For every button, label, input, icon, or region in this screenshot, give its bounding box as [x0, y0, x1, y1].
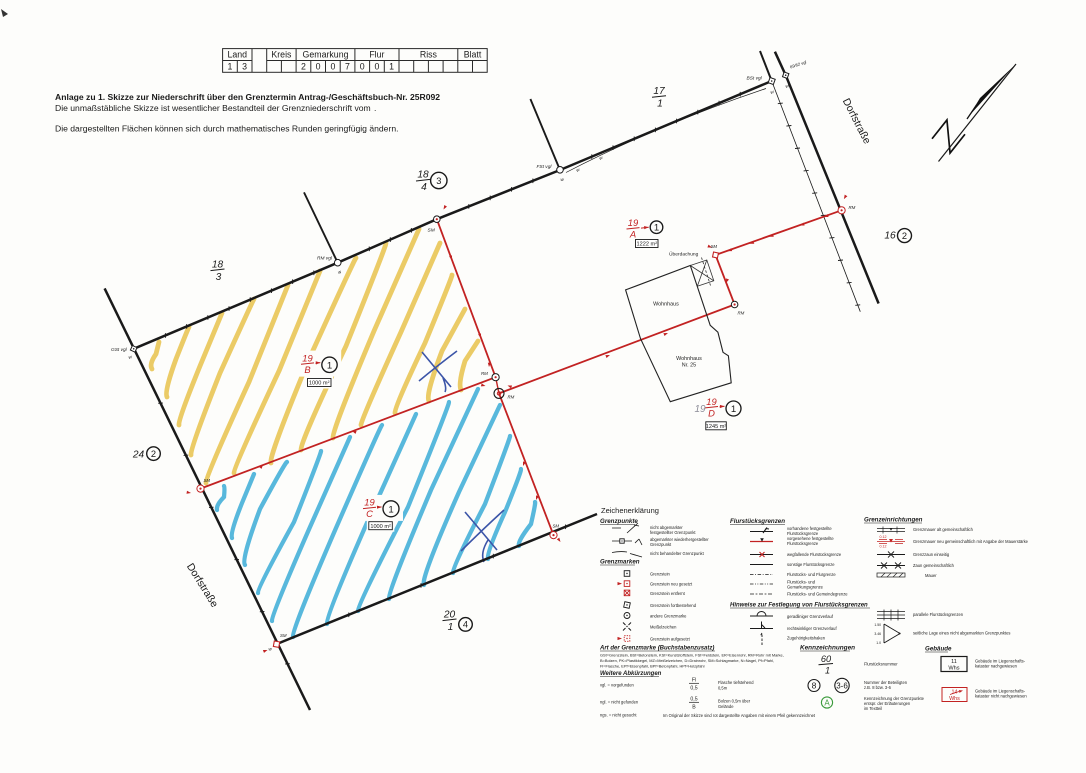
svg-text:RM: RM [738, 311, 745, 316]
svg-text:Gemarkungsgrenze: Gemarkungsgrenze [787, 585, 824, 590]
svg-text:1000 m²: 1000 m² [309, 381, 330, 387]
svg-text:2: 2 [902, 231, 907, 241]
svg-text:Grenzpunkte: Grenzpunkte [600, 518, 638, 525]
svg-text:1: 1 [227, 61, 232, 71]
svg-text:z.B. 8 bzw. 3-6: z.B. 8 bzw. 3-6 [864, 685, 892, 690]
svg-text:kataster nachgewiesen: kataster nachgewiesen [975, 664, 1018, 669]
svg-text:B: B [304, 364, 310, 375]
svg-text:Grenzmarken: Grenzmarken [600, 559, 640, 566]
svg-text:A: A [629, 229, 636, 240]
svg-text:Anlage zu 1. Skizze zur Nieder: Anlage zu 1. Skizze zur Niederschrift üb… [55, 92, 440, 102]
svg-text:Whs: Whs [949, 696, 960, 702]
svg-text:19: 19 [628, 217, 639, 228]
svg-text:0: 0 [374, 61, 379, 71]
svg-text:SM: SM [204, 478, 211, 483]
svg-text:kataster nicht nachgewiesen: kataster nicht nachgewiesen [975, 694, 1027, 699]
svg-text:1: 1 [327, 360, 332, 371]
svg-text:andere Grenzmarke: andere Grenzmarke [650, 614, 687, 619]
svg-text:1: 1 [389, 61, 394, 71]
svg-text:seitliche Lage eines nicht abg: seitliche Lage eines nicht abgemarkten G… [913, 631, 1010, 636]
svg-text:2: 2 [301, 61, 306, 71]
svg-text:1000 m²: 1000 m² [370, 524, 391, 530]
svg-text:Wohnhaus: Wohnhaus [676, 356, 702, 362]
svg-text:Zugehörigkeitshaken: Zugehörigkeitshaken [787, 636, 826, 641]
svg-text:Gebäude: Gebäude [925, 646, 952, 653]
svg-text:19: 19 [364, 497, 375, 508]
svg-text:Flurstücks- und Gemeindegrenze: Flurstücks- und Gemeindegrenze [787, 592, 848, 597]
svg-text:19: 19 [706, 396, 717, 407]
svg-text:Kreis: Kreis [271, 50, 292, 60]
svg-text:festgestellter Grenzpunkt: festgestellter Grenzpunkt [650, 530, 696, 535]
svg-text:nicht behandelter Grenzpunkt: nicht behandelter Grenzpunkt [650, 551, 705, 556]
svg-text:Hinweise zur Festlegung von Fl: Hinweise zur Festlegung von Flurstücksgr… [730, 603, 868, 609]
svg-text:ngs. = nicht gesucht: ngs. = nicht gesucht [600, 713, 637, 718]
svg-text:rechtwinkliger Grenzverlauf: rechtwinkliger Grenzverlauf [787, 626, 837, 631]
svg-text:RM: RM [849, 205, 856, 210]
svg-text:11: 11 [951, 659, 957, 665]
svg-text:BSt vgl: BSt vgl [747, 76, 763, 82]
svg-text:Whs: Whs [948, 666, 959, 672]
svg-text:Grenzzaun einseitig: Grenzzaun einseitig [913, 552, 950, 557]
svg-text:Art der Grenzmarke (Buchstaben: Art der Grenzmarke (Buchstabenzusatz) [599, 646, 714, 652]
svg-text:0: 0 [330, 61, 335, 71]
svg-text:FSt vgl: FSt vgl [537, 164, 553, 170]
svg-text:parallele Flurstücksgrenzen: parallele Flurstücksgrenzen [913, 612, 964, 617]
svg-text:Grenzstein neu gesetzt: Grenzstein neu gesetzt [650, 582, 693, 587]
svg-text:vgl. = vorgefunden: vgl. = vorgefunden [600, 683, 635, 688]
svg-text:Zaun gemeinschaftlich: Zaun gemeinschaftlich [913, 563, 955, 568]
svg-text:2: 2 [151, 449, 156, 459]
svg-text:Grenzpunkt: Grenzpunkt [650, 542, 672, 547]
svg-text:18: 18 [417, 170, 429, 181]
svg-text:Mauer: Mauer [925, 573, 937, 578]
svg-text:Fl=Flasche, EPf=Eisenpfahl, BP: Fl=Flasche, EPf=Eisenpfahl, BPf=Betonpfa… [600, 664, 705, 669]
svg-text:Fl: Fl [692, 678, 696, 684]
svg-text:Grenzmauer alt gemeinschaftlic: Grenzmauer alt gemeinschaftlich [913, 527, 974, 532]
svg-text:A: A [824, 698, 830, 707]
svg-text:0,5: 0,5 [690, 697, 697, 703]
svg-text:wegfallende Flurstücksgrenze: wegfallende Flurstücksgrenze [787, 552, 842, 557]
svg-text:D: D [708, 408, 715, 419]
svg-text:Grenzstein: Grenzstein [650, 572, 671, 577]
svg-text:1245 m²: 1245 m² [706, 424, 727, 430]
svg-text:4: 4 [463, 620, 468, 630]
svg-text:60: 60 [821, 654, 832, 664]
svg-text:Nr. 25: Nr. 25 [682, 363, 696, 369]
svg-text:3: 3 [242, 61, 247, 71]
svg-text:Zeichenerklärung: Zeichenerklärung [601, 506, 659, 515]
svg-text:GSt=Grenzstein, BSt=Betonstein: GSt=Grenzstein, BSt=Betonstein, KSt=Kuns… [600, 653, 784, 658]
svg-text:Überdachung: Überdachung [669, 251, 699, 258]
svg-text:Grenzstein entfernt: Grenzstein entfernt [650, 591, 686, 596]
svg-text:B=Bolzen, PK=Plastikkegel, MZ=: B=Bolzen, PK=Plastikkegel, MZ=Meißelzeic… [600, 658, 774, 663]
svg-text:SM: SM [553, 524, 560, 529]
svg-text:Grenzstein aufgesetzt: Grenzstein aufgesetzt [650, 637, 691, 642]
svg-text:Riss: Riss [420, 50, 438, 60]
svg-text:RM vgl: RM vgl [317, 256, 333, 262]
svg-text:Im Original der Skizze sind ro: Im Original der Skizze sind rot dargeste… [663, 713, 816, 718]
svg-text:1: 1 [654, 223, 659, 234]
svg-text:sonstige Flurstücksgrenze: sonstige Flurstücksgrenze [787, 562, 835, 567]
svg-text:Flurstücks- und Flurgrenze: Flurstücks- und Flurgrenze [787, 572, 836, 577]
svg-text:Flurstücksgrenzen: Flurstücksgrenzen [730, 518, 785, 525]
svg-text:1.0: 1.0 [876, 641, 881, 645]
svg-text:Flurstücksgrenze: Flurstücksgrenze [787, 541, 819, 546]
svg-text:1: 1 [825, 666, 830, 676]
svg-text:Grenzmauer neu gemeinschaftlic: Grenzmauer neu gemeinschaftlich mit Anga… [913, 539, 1029, 544]
svg-text:Kennzeichnungen: Kennzeichnungen [800, 645, 855, 652]
svg-text:3: 3 [436, 176, 441, 186]
svg-text:SM: SM [711, 244, 718, 249]
svg-text:Flurstücksnummer: Flurstücksnummer [864, 662, 898, 667]
svg-text:Grenzstein fortbestehend: Grenzstein fortbestehend [650, 603, 697, 608]
svg-text:0,5: 0,5 [690, 686, 697, 692]
svg-text:C: C [366, 508, 373, 519]
svg-text:RM: RM [508, 395, 515, 400]
svg-text:geradliniger Grenzverlauf: geradliniger Grenzverlauf [787, 614, 834, 619]
svg-text:3: 3 [216, 272, 222, 283]
svg-text:1.50: 1.50 [874, 623, 881, 627]
svg-text:19: 19 [302, 352, 313, 363]
svg-text:Meißelzeichen: Meißelzeichen [650, 625, 677, 630]
svg-text:Land: Land [228, 50, 248, 60]
svg-text:GSt vgl: GSt vgl [111, 347, 128, 353]
svg-text:SM: SM [428, 228, 435, 234]
svg-text:24: 24 [132, 450, 145, 461]
svg-text:19: 19 [694, 404, 706, 415]
svg-text:17: 17 [653, 86, 665, 97]
svg-text:Flasche tiefstehend: Flasche tiefstehend [718, 680, 754, 685]
svg-text:Gelände: Gelände [718, 704, 734, 709]
svg-text:Die dargestellten Flächen könn: Die dargestellten Flächen können sich du… [55, 124, 398, 134]
svg-text:Wohnhaus: Wohnhaus [653, 302, 679, 308]
svg-text:1: 1 [657, 99, 663, 110]
svg-text:3.46: 3.46 [874, 632, 881, 636]
svg-text:8: 8 [812, 681, 817, 691]
svg-text:Flur: Flur [369, 50, 384, 60]
svg-text:RM: RM [481, 371, 488, 376]
svg-text:1: 1 [388, 504, 393, 515]
svg-text:.: . [374, 103, 376, 113]
svg-text:20: 20 [443, 609, 456, 620]
svg-text:Grenzeinrichtungen: Grenzeinrichtungen [864, 517, 923, 524]
svg-text:16: 16 [884, 231, 896, 242]
svg-text:1: 1 [448, 622, 454, 633]
svg-text:Die unmaßstäbliche Skizze ist: Die unmaßstäbliche Skizze ist wesentlich… [55, 103, 371, 113]
svg-text:18: 18 [212, 259, 224, 270]
svg-text:0,5m: 0,5m [718, 686, 728, 691]
svg-text:Gemarkung: Gemarkung [303, 50, 349, 60]
svg-text:im Textteil: im Textteil [864, 706, 882, 711]
svg-text:1222 m²: 1222 m² [637, 242, 658, 248]
svg-text:B: B [692, 705, 696, 711]
svg-text:1: 1 [731, 404, 736, 415]
svg-text:0.12: 0.12 [880, 535, 887, 539]
svg-text:0.12: 0.12 [880, 545, 887, 549]
svg-text:4: 4 [421, 182, 427, 193]
svg-text:Blatt: Blatt [464, 50, 482, 60]
svg-text:Bolzen 0,5m über: Bolzen 0,5m über [718, 699, 751, 704]
svg-text:7: 7 [345, 61, 350, 71]
svg-text:Weitere Abkürzungen: Weitere Abkürzungen [600, 671, 662, 677]
svg-text:0: 0 [316, 61, 321, 71]
svg-text:3-6: 3-6 [836, 681, 848, 690]
svg-text:ngl. = nicht gefunden: ngl. = nicht gefunden [600, 700, 639, 705]
svg-text:SM: SM [280, 633, 287, 638]
svg-text:0: 0 [360, 61, 365, 71]
